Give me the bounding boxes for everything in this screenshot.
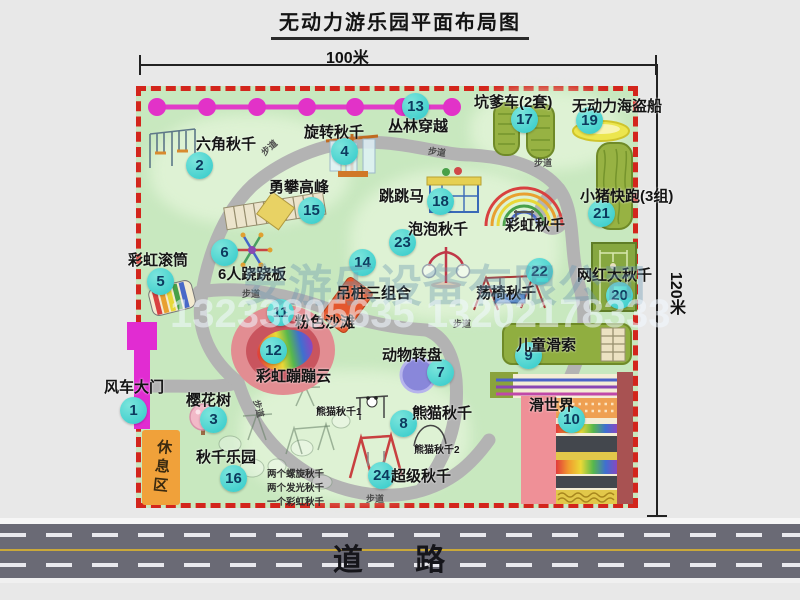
height-dimension-label: 120米 — [663, 272, 687, 315]
road-label: 道 路 — [333, 535, 467, 579]
right-dimension-line — [656, 64, 658, 516]
title-bar: 无动力游乐园平面布局图 — [0, 6, 800, 40]
rest-area: 休息区 — [142, 430, 180, 505]
windmill-gate-icon — [127, 322, 157, 350]
width-dimension-label: 100米 — [326, 44, 369, 68]
windmill-gate-post — [134, 349, 150, 429]
swing-park-note-1: 两个发光秋千 — [267, 482, 324, 496]
grass-patch — [470, 90, 620, 170]
page-title: 无动力游乐园平面布局图 — [271, 6, 529, 40]
swing-park-note-2: 一个彩虹秋千 — [267, 496, 324, 510]
rainbow-swing-label: 彩虹秋千 — [505, 214, 565, 235]
road-shoulder-bottom — [0, 578, 800, 583]
right-dimension-tick-bottom — [647, 515, 667, 517]
grass-patch — [150, 115, 350, 225]
top-dimension-line — [140, 64, 657, 66]
panda-swing-1-label: 熊猫秋千1 — [316, 403, 362, 418]
swing-park-note-0: 两个螺旋秋千 — [267, 468, 324, 482]
swing-park-notes: 两个螺旋秋千两个发光秋千一个彩虹秋千 — [267, 468, 324, 510]
panda-swing-2-label: 熊猫秋千2 — [414, 441, 460, 456]
grass-patch — [350, 170, 560, 320]
top-dimension-tick-left — [139, 55, 141, 75]
road: 道 路 — [0, 524, 800, 578]
layout-figure: 无动力游乐园平面布局图 100米 120米 — [0, 0, 800, 600]
rest-area-label: 休息区 — [148, 438, 175, 497]
